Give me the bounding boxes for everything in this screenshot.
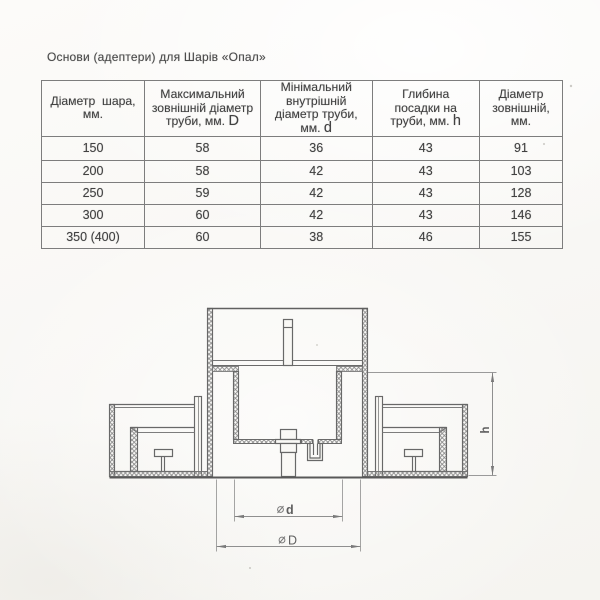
svg-text:D: D: [288, 534, 297, 548]
svg-text:d: d: [286, 503, 294, 517]
svg-text:h: h: [480, 426, 492, 433]
